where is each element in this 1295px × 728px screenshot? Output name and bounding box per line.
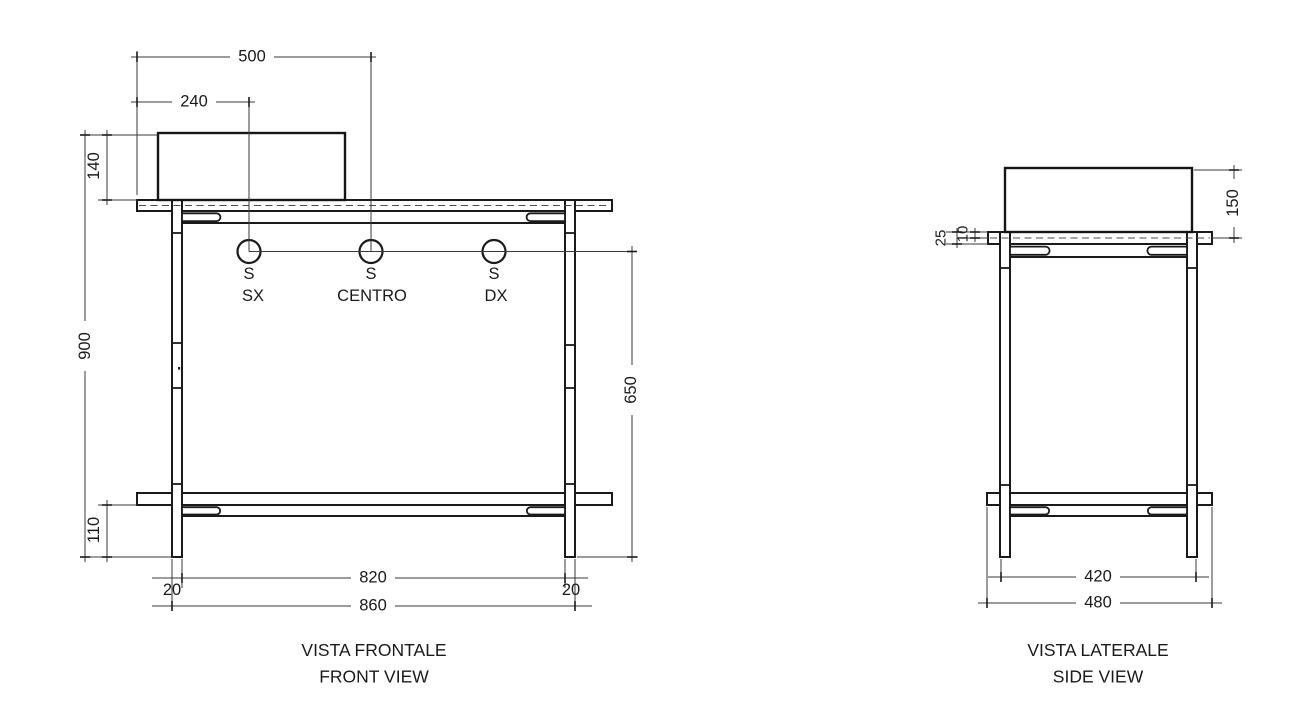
front-view-title-it: VISTA FRONTALE <box>301 640 446 660</box>
dim-side-basin-height: 150 <box>1224 165 1242 243</box>
dim-basin-height: 140 <box>85 130 112 205</box>
dim-value: 140 <box>85 152 103 180</box>
rail-slot <box>1148 507 1187 514</box>
dim-value: 900 <box>76 332 94 360</box>
side-top-rail <box>1010 244 1187 257</box>
dim-value: 500 <box>238 48 266 66</box>
dim-tap-height: 650 <box>622 246 640 562</box>
dim-value: 820 <box>359 569 387 587</box>
dim-inner-span: 820 20 20 <box>152 569 588 600</box>
front-view: S S S SX CENTRO DX 5 <box>76 48 640 687</box>
dim-side-leg-span: 420 <box>988 568 1209 586</box>
front-leg-left <box>172 200 182 557</box>
front-view-title-en: FRONT VIEW <box>319 667 429 687</box>
dim-overall-depth: 480 <box>978 594 1222 612</box>
front-shelf <box>137 493 612 505</box>
dim-value: 150 <box>1224 189 1242 217</box>
dim-top-thickness-surface: 10 <box>955 226 981 243</box>
side-view-title-en: SIDE VIEW <box>1053 667 1144 687</box>
side-basin <box>1005 168 1192 232</box>
front-top-rail <box>182 211 565 223</box>
dim-value: 240 <box>180 93 208 111</box>
rail-slot <box>1010 507 1049 514</box>
dim-value: 25 <box>933 230 950 247</box>
side-leg-left <box>1000 232 1010 557</box>
rail-slot <box>182 507 220 514</box>
tap-label-dx: DX <box>485 287 508 305</box>
tap-label-centro: CENTRO <box>337 287 407 305</box>
drawing-page: S S S SX CENTRO DX 5 <box>0 0 1295 728</box>
tap-symbol-centro: S <box>365 265 376 283</box>
front-shelf-rail <box>182 505 565 516</box>
technical-drawing: S S S SX CENTRO DX 5 <box>0 0 1295 728</box>
rail-slot <box>182 213 220 221</box>
front-leg-right <box>565 200 575 557</box>
dim-value-leg-left: 20 <box>163 581 181 599</box>
side-tabletop <box>987 232 1212 505</box>
dim-overall-width: 860 <box>152 597 592 615</box>
dim-value: 110 <box>85 517 103 543</box>
rail-slot <box>527 507 565 514</box>
rail-slot <box>1147 247 1187 255</box>
tap-holes: S S S SX CENTRO DX <box>238 240 638 305</box>
tap-symbol-dx: S <box>488 265 499 283</box>
leg-fixing-dot <box>178 367 180 370</box>
dim-value: 650 <box>622 376 640 404</box>
side-shelf-rail <box>1010 505 1187 516</box>
dim-tap-sx-offset: 240 <box>131 93 255 111</box>
front-basin <box>158 133 345 200</box>
dim-value: 860 <box>359 597 387 615</box>
rail-slot <box>527 213 565 221</box>
dim-value-leg-right: 20 <box>562 581 580 599</box>
side-leg-right <box>1187 232 1197 557</box>
side-shelf <box>987 493 1212 505</box>
tap-symbol-sx: S <box>243 265 254 283</box>
rail-slot <box>1010 247 1050 255</box>
dim-tap-centro-offset: 500 <box>131 48 376 66</box>
dim-value: 480 <box>1084 594 1112 612</box>
side-view-title-it: VISTA LATERALE <box>1027 640 1168 660</box>
dim-value: 10 <box>955 226 972 243</box>
dim-shelf-bottom-offset: 110 <box>85 500 112 562</box>
dim-overall-height: 900 <box>76 130 94 562</box>
dim-value: 420 <box>1084 568 1112 586</box>
side-view: 150 25 10 420 <box>933 165 1243 687</box>
tap-label-sx: SX <box>242 287 264 305</box>
